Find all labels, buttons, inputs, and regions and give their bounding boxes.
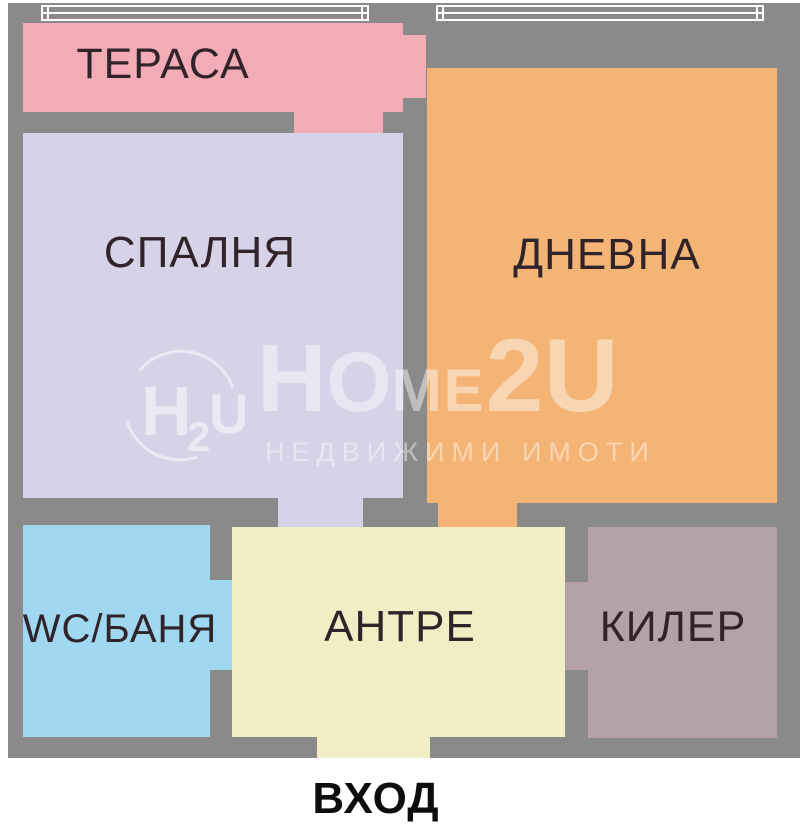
- rail-post: [41, 5, 49, 21]
- room-label-hall: АНТРЕ: [300, 605, 500, 649]
- floor-plan: ТЕРАСА СПАЛНЯ ДНЕВНА WC/БАНЯ АНТРЕ КИЛЕР: [8, 3, 800, 758]
- door-opening-living-hall: [438, 503, 517, 530]
- room-label-terrace: ТЕРАСА: [73, 44, 253, 84]
- rail-line: [43, 12, 367, 14]
- room-bedroom: [23, 133, 403, 498]
- entrance-label: ВХОД: [286, 776, 466, 822]
- rail-line: [438, 12, 762, 14]
- door-opening-entrance: [317, 737, 430, 758]
- room-label-wc: WC/БАНЯ: [22, 607, 218, 651]
- rail-line: [438, 19, 762, 21]
- room-living: [427, 68, 777, 503]
- rail-line: [438, 5, 762, 7]
- door-opening-terrace-bedroom: [294, 112, 383, 134]
- rail-post: [756, 5, 764, 21]
- door-opening-bedroom-hall: [278, 498, 363, 527]
- window-rail-right-icon: [438, 5, 762, 21]
- rail-line: [43, 5, 367, 7]
- rail-post: [436, 5, 444, 21]
- rail-line: [43, 19, 367, 21]
- room-terrace-extension: [403, 35, 426, 98]
- window-rail-left-icon: [43, 5, 367, 21]
- room-label-closet: КИЛЕР: [573, 605, 773, 649]
- room-label-living: ДНЕВНА: [507, 233, 707, 277]
- room-label-bedroom: СПАЛНЯ: [100, 231, 300, 275]
- rail-post: [361, 5, 369, 21]
